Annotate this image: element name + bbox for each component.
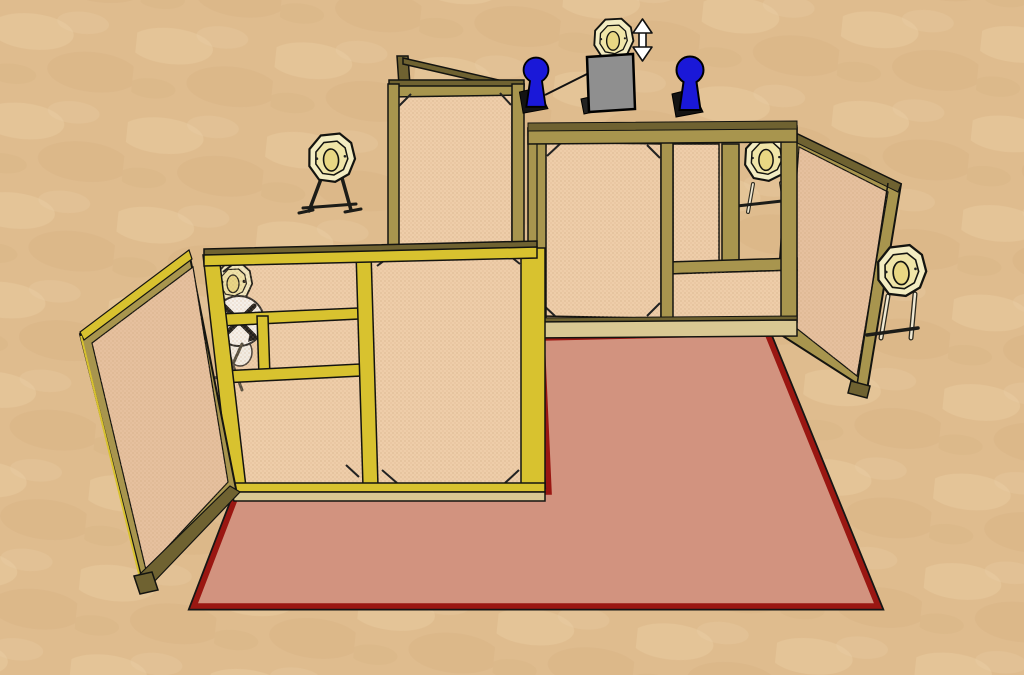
left-main-wall[interactable]: [203, 241, 545, 501]
stage-3d-viewport[interactable]: [0, 0, 1024, 675]
activator-box[interactable]: [581, 54, 635, 114]
stage-scene: [0, 0, 1024, 675]
right-main-wall[interactable]: [528, 128, 661, 326]
